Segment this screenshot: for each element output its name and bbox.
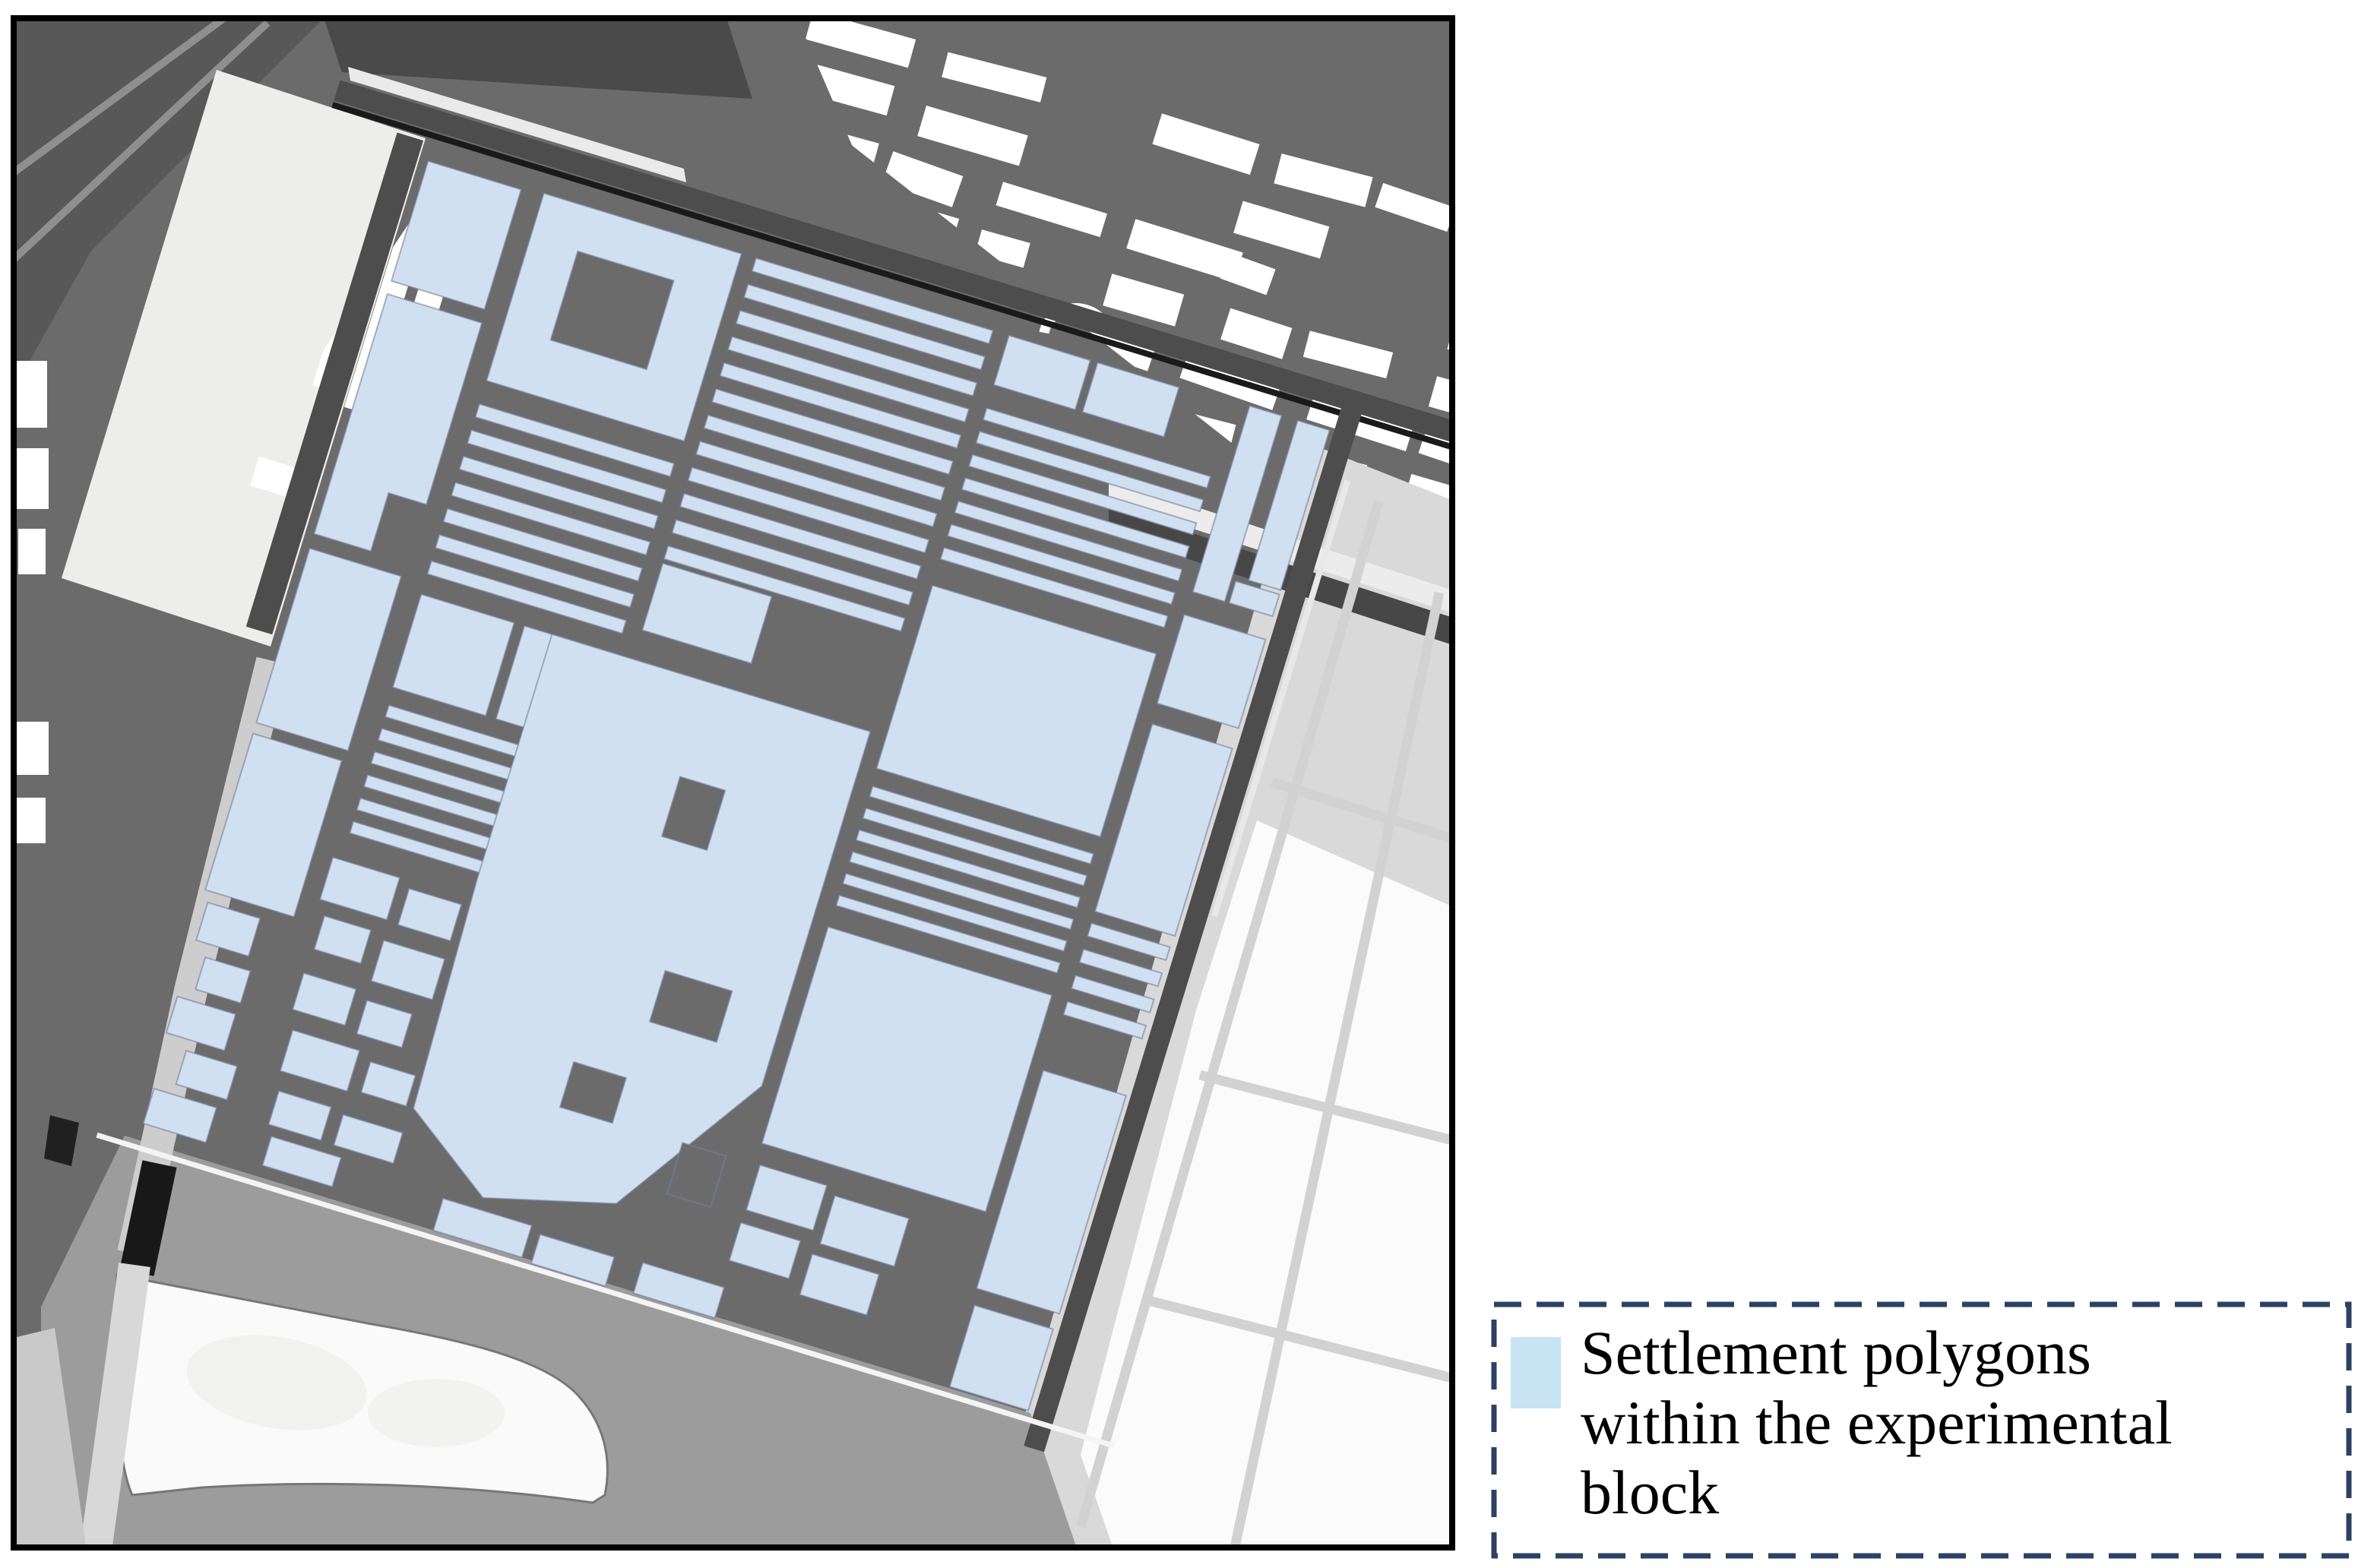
park-lawn bbox=[368, 1379, 505, 1447]
legend-box: Settlement polygons within the experimen… bbox=[1491, 1301, 2352, 1559]
legend-label: Settlement polygons within the experimen… bbox=[1581, 1318, 2341, 1528]
map-panel bbox=[11, 15, 1455, 1551]
legend-label-line3: block bbox=[1581, 1458, 2341, 1528]
map-figure bbox=[11, 15, 1455, 1551]
legend-label-line2: within the experimental bbox=[1581, 1388, 2341, 1458]
legend-label-line1: Settlement polygons bbox=[1581, 1318, 2341, 1388]
figure-page: { "legend": { "line1": "Settlement polyg… bbox=[0, 0, 2358, 1568]
legend-settlement-swatch bbox=[1511, 1337, 1561, 1408]
